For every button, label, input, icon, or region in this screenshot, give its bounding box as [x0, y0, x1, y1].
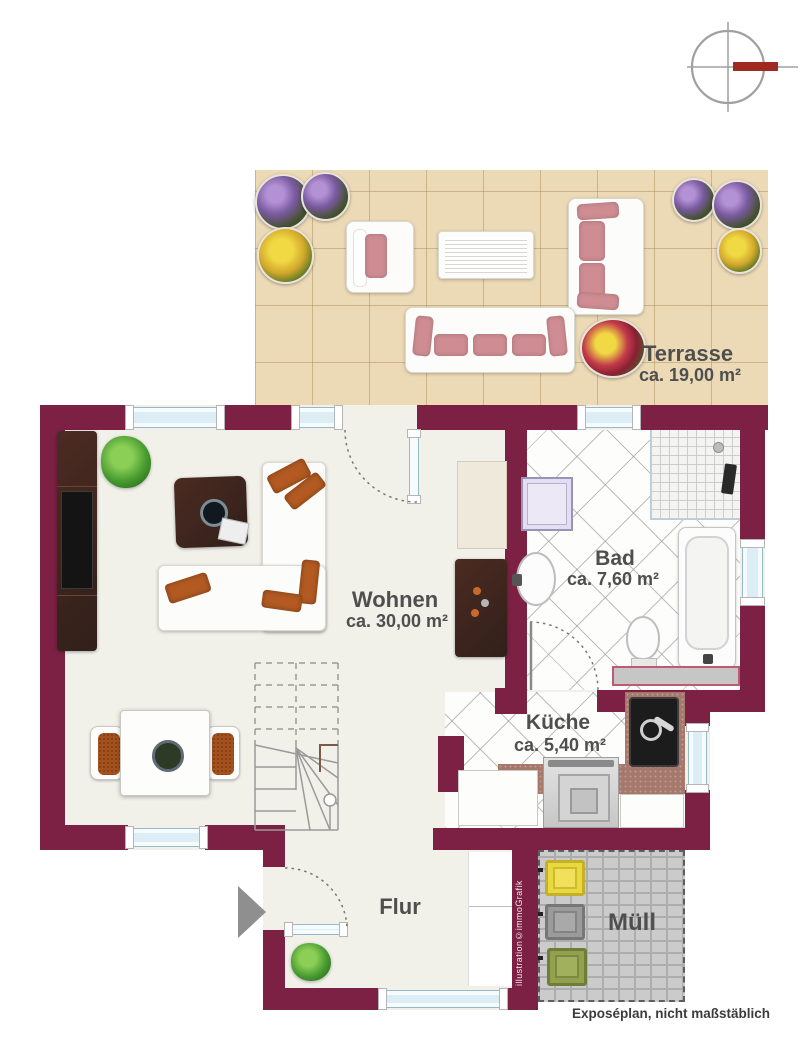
wall-segment — [433, 828, 710, 850]
floor-plan: Terrasse ca. 19,00 m² — [0, 0, 800, 1057]
room-area-kueche: ca. 5,40 m² — [514, 736, 606, 755]
wohnen-area: ca. 30,00 m² — [346, 611, 448, 631]
disclaimer-label: Exposéplan, nicht maßstäblich — [572, 1006, 770, 1021]
bathtub — [678, 527, 736, 669]
wall-segment — [495, 688, 527, 714]
shower — [651, 430, 740, 519]
wall-segment — [263, 988, 381, 1010]
bad-area: ca. 7,60 m² — [567, 569, 659, 589]
room-area-bad: ca. 7,60 m² — [567, 570, 659, 589]
dining-table — [120, 710, 210, 796]
kitchen-sink — [629, 697, 679, 767]
wall-segment — [222, 405, 294, 430]
watermark-text: illustration©immoGrafik — [514, 858, 538, 1008]
bin-green — [547, 948, 587, 986]
radiator — [612, 666, 740, 686]
side-niche — [468, 852, 513, 986]
window — [126, 828, 207, 847]
bin-gray — [545, 904, 585, 940]
window — [742, 540, 763, 605]
room-label-terrasse: Terrasse — [643, 342, 733, 365]
magazine-icon — [218, 518, 250, 545]
kitchen-cabinet — [458, 770, 538, 826]
plant-icon — [101, 436, 151, 488]
wall-segment — [417, 405, 578, 430]
shower-drain-icon — [713, 442, 724, 453]
muell-name: Müll — [608, 909, 656, 936]
kueche-area: ca. 5,40 m² — [514, 735, 606, 755]
flower-pot-icon — [712, 180, 762, 230]
flur-name: Flur — [379, 894, 421, 919]
wall-segment — [740, 603, 765, 712]
compass-icon — [687, 22, 798, 112]
basin-faucet-icon — [512, 574, 522, 586]
room-label-flur: Flur — [379, 895, 421, 918]
window — [126, 407, 224, 428]
kitchen-cabinet — [620, 794, 684, 828]
flower-pot-icon — [580, 318, 646, 378]
coffee-table — [174, 476, 248, 548]
wall-segment — [685, 790, 710, 850]
washbasin — [516, 552, 556, 606]
room-area-wohnen: ca. 30,00 m² — [346, 612, 448, 631]
room-area-terrasse: ca. 19,00 m² — [639, 366, 741, 385]
washing-machine — [521, 477, 573, 531]
room-label-wohnen: Wohnen — [352, 588, 438, 611]
wall-segment — [263, 850, 285, 867]
exterior-mask — [710, 712, 800, 852]
entrance-door-leaf — [285, 924, 347, 935]
flower-pot-icon — [717, 228, 762, 274]
wall-segment — [640, 405, 768, 430]
flower-pot-icon — [672, 178, 716, 222]
dining-chair — [206, 726, 240, 780]
stove — [543, 757, 619, 828]
terrace-table — [438, 231, 534, 279]
dresser — [455, 559, 507, 657]
tub-faucet-icon — [703, 654, 713, 664]
entrance-arrow-icon — [238, 886, 266, 938]
wall-segment — [740, 430, 765, 540]
disclaimer-text: Exposéplan, nicht maßstäblich — [572, 1006, 770, 1021]
wall-segment — [40, 825, 128, 850]
wohnen-name: Wohnen — [352, 587, 438, 612]
terrace-armchair — [346, 221, 414, 293]
kueche-name: Küche — [526, 711, 590, 734]
terrasse-area: ca. 19,00 m² — [639, 365, 741, 385]
wall-segment — [205, 825, 285, 850]
window — [292, 407, 342, 428]
room-label-bad: Bad — [595, 548, 635, 570]
terrace-sofa-large — [405, 307, 575, 373]
terrace-sofa-small — [568, 198, 644, 315]
watermark-label: illustration©immoGrafik — [514, 880, 524, 986]
flower-pot-icon — [257, 227, 314, 284]
hall-cabinet — [457, 461, 507, 549]
toilet — [626, 616, 660, 660]
room-label-muell: Müll — [608, 910, 656, 935]
terrasse-name: Terrasse — [643, 341, 733, 366]
terrace-door-leaf — [409, 430, 419, 503]
flower-pot-icon — [301, 172, 350, 221]
tv-sideboard — [57, 431, 97, 651]
dining-chair — [90, 726, 124, 780]
bowl-icon — [152, 740, 184, 772]
shower-fitting-icon — [721, 463, 737, 494]
room-label-kueche: Küche — [526, 712, 590, 734]
tv-icon — [61, 491, 93, 589]
window — [688, 724, 707, 792]
bad-name: Bad — [595, 547, 635, 570]
window — [578, 407, 640, 428]
window — [379, 990, 507, 1008]
plant-icon — [291, 943, 331, 981]
bin-yellow — [545, 860, 585, 896]
